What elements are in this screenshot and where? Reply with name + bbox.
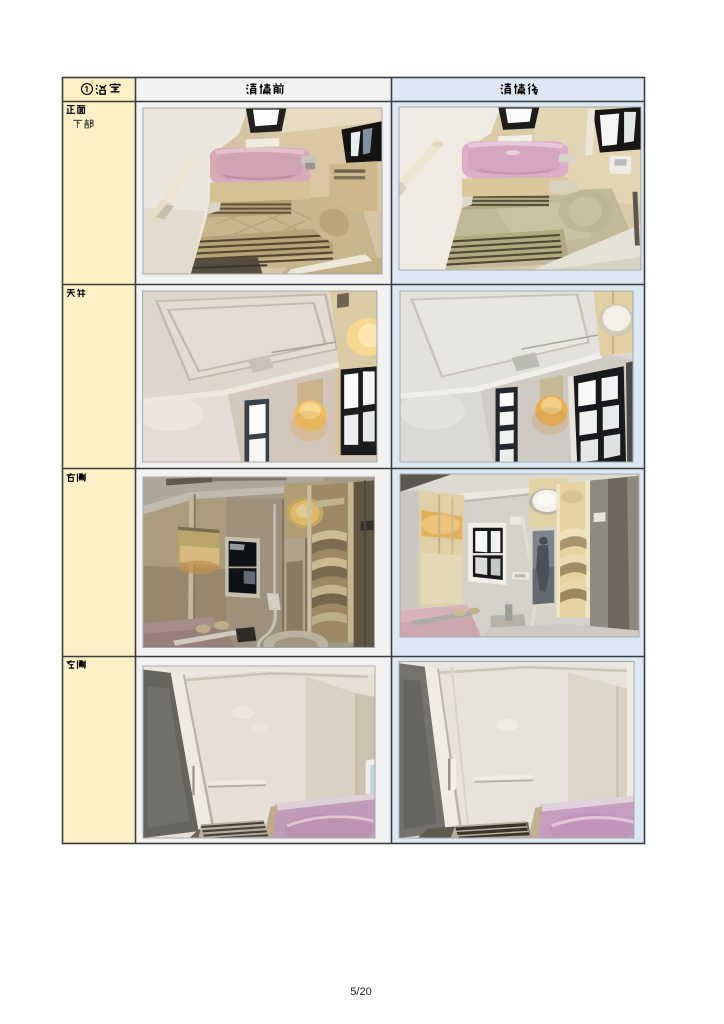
svg-text:5/20: 5/20: [350, 986, 371, 998]
